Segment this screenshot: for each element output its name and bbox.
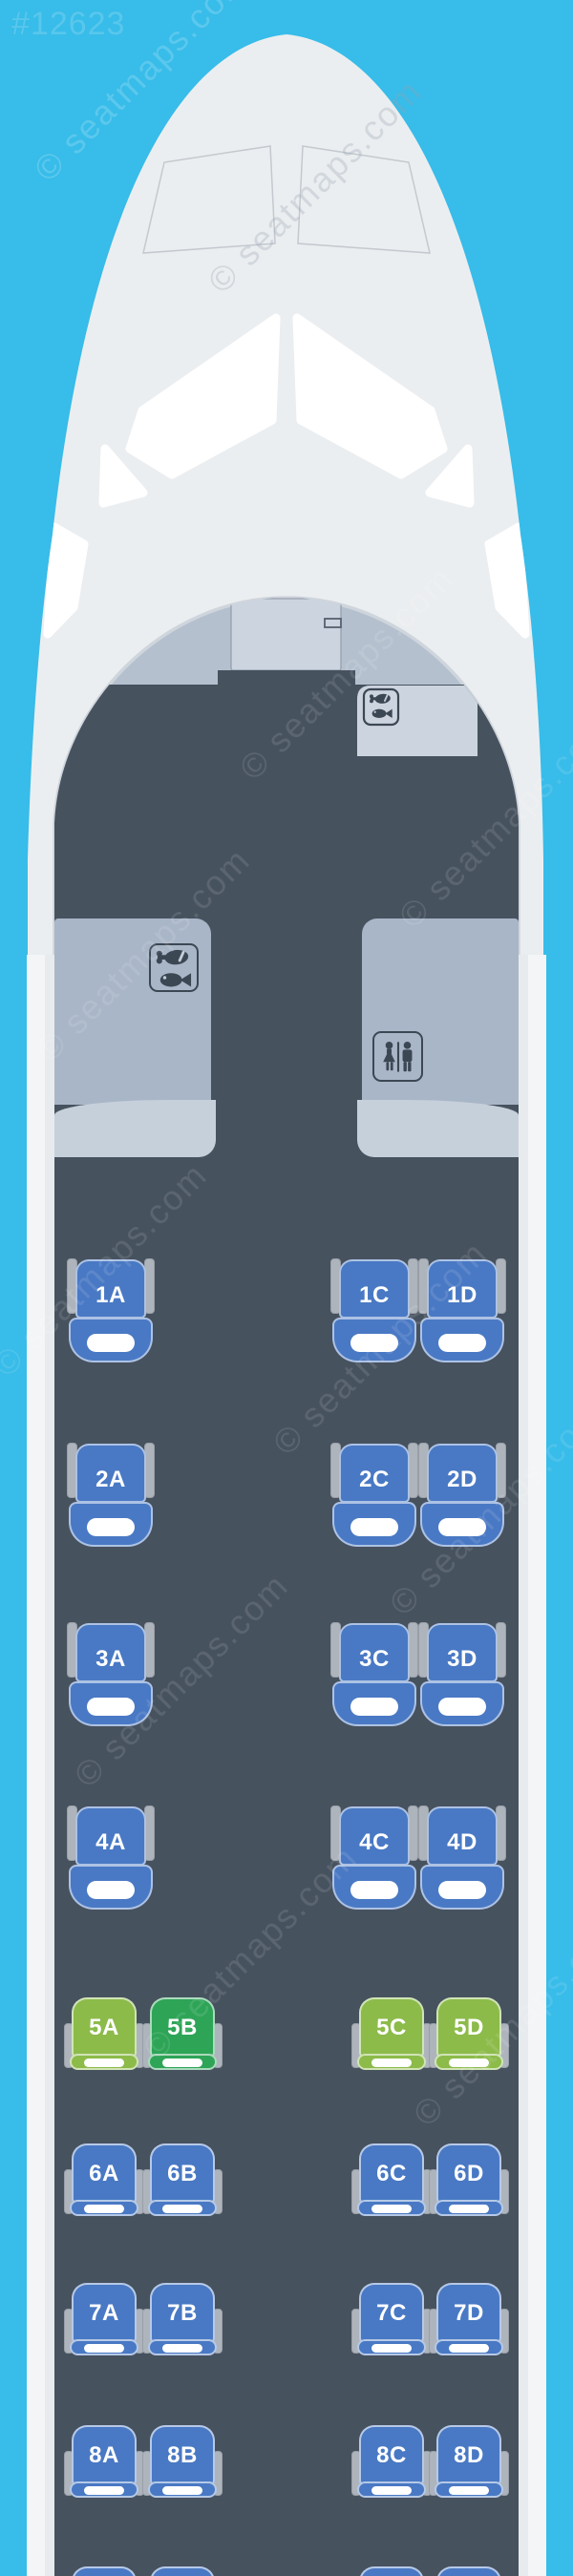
seat-cushion bbox=[435, 2054, 503, 2070]
seat-cushion bbox=[357, 2481, 426, 2498]
seat-cushion-pad bbox=[162, 2059, 202, 2067]
seat-2A[interactable]: 2A bbox=[67, 1442, 155, 1548]
seat-label: 5B bbox=[167, 2015, 198, 2041]
seat-6A[interactable]: 6A bbox=[64, 2143, 144, 2216]
seat-cushion bbox=[332, 1865, 416, 1910]
aircraft-nose-graphic bbox=[0, 0, 573, 964]
seat-3C[interactable]: 3C bbox=[330, 1621, 418, 1727]
seat-5C[interactable]: 5C bbox=[351, 1997, 432, 2070]
fuselage-wall-left bbox=[27, 955, 54, 2576]
seat-cushion bbox=[69, 1318, 153, 1362]
seat-4A[interactable]: 4A bbox=[67, 1805, 155, 1911]
seat-cushion-pad bbox=[84, 2344, 124, 2353]
seat-back: 7A bbox=[72, 2283, 137, 2343]
seat-label: 4A bbox=[95, 1829, 126, 1856]
seat-cushion bbox=[69, 1865, 153, 1910]
seat-label: 7D bbox=[454, 2300, 484, 2327]
seat-label: 8B bbox=[167, 2442, 198, 2469]
seat-back: 3A bbox=[75, 1623, 146, 1682]
seat-cushion-pad bbox=[84, 2486, 124, 2495]
seat-cushion-pad bbox=[350, 1334, 398, 1352]
seat-1C[interactable]: 1C bbox=[330, 1257, 418, 1363]
seat-back: 8D bbox=[436, 2425, 501, 2485]
seat-cushion bbox=[148, 2054, 217, 2070]
seat-cushion-pad bbox=[438, 1518, 486, 1536]
seat-cushion bbox=[148, 2481, 217, 2498]
seat-cushion bbox=[420, 1681, 504, 1726]
seat-label: 8A bbox=[89, 2442, 119, 2469]
fuselage-wall-right bbox=[519, 955, 546, 2576]
seat-label: 2D bbox=[447, 1467, 477, 1493]
seat-back bbox=[436, 2566, 501, 2576]
map-id-label: #12623 bbox=[11, 6, 125, 43]
seat-label: 2C bbox=[359, 1467, 390, 1493]
galley-counter-right bbox=[357, 686, 477, 756]
seat-cushion bbox=[70, 2200, 138, 2216]
seat-row9-d-partial[interactable] bbox=[429, 2566, 509, 2576]
seat-3A[interactable]: 3A bbox=[67, 1621, 155, 1727]
seat-cushion bbox=[332, 1681, 416, 1726]
seat-cushion-pad bbox=[371, 2205, 412, 2213]
seat-8D[interactable]: 8D bbox=[429, 2425, 509, 2498]
seat-back bbox=[72, 2566, 137, 2576]
seat-cushion bbox=[69, 1681, 153, 1726]
seat-cushion-pad bbox=[449, 2059, 489, 2067]
seat-1D[interactable]: 1D bbox=[418, 1257, 506, 1363]
cockpit-door bbox=[231, 599, 341, 670]
seat-back: 2C bbox=[339, 1444, 410, 1503]
seat-cushion-pad bbox=[162, 2486, 202, 2495]
seat-map-page: 1A 1C 1D 2A 2C 2D 3A 3C 3D 4A 4C 4D 5A 5… bbox=[0, 0, 573, 2576]
seat-cushion-pad bbox=[350, 1881, 398, 1899]
lavatory-monument-counter bbox=[357, 1100, 519, 1157]
seat-back: 4D bbox=[427, 1806, 498, 1866]
seat-cushion bbox=[420, 1865, 504, 1910]
seat-label: 7C bbox=[376, 2300, 407, 2327]
seat-cushion bbox=[435, 2481, 503, 2498]
seat-cushion-pad bbox=[162, 2344, 202, 2353]
seat-label: 3A bbox=[95, 1646, 126, 1673]
seat-cushion bbox=[420, 1318, 504, 1362]
seat-7B[interactable]: 7B bbox=[142, 2283, 223, 2355]
seat-label: 6A bbox=[89, 2161, 119, 2187]
seat-cushion bbox=[148, 2339, 217, 2355]
lavatory-icon bbox=[372, 1031, 423, 1082]
seat-cushion-pad bbox=[350, 1518, 398, 1536]
seat-back: 2A bbox=[75, 1444, 146, 1503]
seat-cushion bbox=[435, 2200, 503, 2216]
seat-back: 7C bbox=[359, 2283, 424, 2343]
seat-8B[interactable]: 8B bbox=[142, 2425, 223, 2498]
seat-cushion bbox=[69, 1502, 153, 1547]
seat-back: 8B bbox=[150, 2425, 215, 2485]
seat-4C[interactable]: 4C bbox=[330, 1805, 418, 1911]
seat-5B[interactable]: 5B bbox=[142, 1997, 223, 2070]
seat-label: 3C bbox=[359, 1646, 390, 1673]
seat-label: 7A bbox=[89, 2300, 119, 2327]
seat-cushion bbox=[70, 2481, 138, 2498]
seat-back: 3C bbox=[339, 1623, 410, 1682]
seat-label: 5D bbox=[454, 2015, 484, 2041]
seat-back: 8C bbox=[359, 2425, 424, 2485]
seat-6B[interactable]: 6B bbox=[142, 2143, 223, 2216]
seat-label: 8D bbox=[454, 2442, 484, 2469]
seat-cushion-pad bbox=[350, 1698, 398, 1716]
seat-back: 7D bbox=[436, 2283, 501, 2343]
seat-8A[interactable]: 8A bbox=[64, 2425, 144, 2498]
seat-back: 6D bbox=[436, 2143, 501, 2204]
seat-cushion bbox=[357, 2200, 426, 2216]
seat-cushion-pad bbox=[87, 1698, 135, 1716]
seat-back: 1D bbox=[427, 1259, 498, 1319]
seat-cushion bbox=[357, 2054, 426, 2070]
seat-5A[interactable]: 5A bbox=[64, 1997, 144, 2070]
seat-cushion bbox=[332, 1318, 416, 1362]
seat-label: 1D bbox=[447, 1282, 477, 1309]
seat-3D[interactable]: 3D bbox=[418, 1621, 506, 1727]
seat-back: 1A bbox=[75, 1259, 146, 1319]
seat-cushion bbox=[357, 2339, 426, 2355]
seat-7A[interactable]: 7A bbox=[64, 2283, 144, 2355]
seat-cushion bbox=[70, 2054, 138, 2070]
seat-cushion-pad bbox=[438, 1881, 486, 1899]
seat-label: 6D bbox=[454, 2161, 484, 2187]
seat-cushion-pad bbox=[449, 2205, 489, 2213]
seat-4D[interactable]: 4D bbox=[418, 1805, 506, 1911]
seat-row9-c-partial[interactable] bbox=[351, 2566, 432, 2576]
seat-label: 4C bbox=[359, 1829, 390, 1856]
seat-label: 1A bbox=[95, 1282, 126, 1309]
seat-2D[interactable]: 2D bbox=[418, 1442, 506, 1548]
seat-6D[interactable]: 6D bbox=[429, 2143, 509, 2216]
seat-back: 4C bbox=[339, 1806, 410, 1866]
seat-back: 6B bbox=[150, 2143, 215, 2204]
seat-label: 3D bbox=[447, 1646, 477, 1673]
seat-cushion-pad bbox=[371, 2059, 412, 2067]
seat-label: 6C bbox=[376, 2161, 407, 2187]
seat-back: 5C bbox=[359, 1997, 424, 2058]
seat-back: 7B bbox=[150, 2283, 215, 2343]
seat-label: 1C bbox=[359, 1282, 390, 1309]
seat-back: 6C bbox=[359, 2143, 424, 2204]
seat-cushion-pad bbox=[84, 2205, 124, 2213]
seat-back: 1C bbox=[339, 1259, 410, 1319]
seat-row9-b-partial[interactable] bbox=[142, 2566, 223, 2576]
seat-back: 6A bbox=[72, 2143, 137, 2204]
seat-cushion-pad bbox=[449, 2344, 489, 2353]
seat-row9-a-partial[interactable] bbox=[64, 2566, 144, 2576]
seat-label: 6B bbox=[167, 2161, 198, 2187]
seat-7D[interactable]: 7D bbox=[429, 2283, 509, 2355]
seat-cushion bbox=[148, 2200, 217, 2216]
seat-label: 5A bbox=[89, 2015, 119, 2041]
seat-cushion-pad bbox=[87, 1518, 135, 1536]
seat-back bbox=[359, 2566, 424, 2576]
seat-cushion-pad bbox=[371, 2486, 412, 2495]
seat-back: 3D bbox=[427, 1623, 498, 1682]
seat-8C[interactable]: 8C bbox=[351, 2425, 432, 2498]
seat-back: 8A bbox=[72, 2425, 137, 2485]
seat-cushion bbox=[70, 2339, 138, 2355]
seat-back: 5B bbox=[150, 1997, 215, 2058]
seat-cushion-pad bbox=[87, 1881, 135, 1899]
seat-cushion bbox=[420, 1502, 504, 1547]
seat-2C[interactable]: 2C bbox=[330, 1442, 418, 1548]
seat-7C[interactable]: 7C bbox=[351, 2283, 432, 2355]
seat-1A[interactable]: 1A bbox=[67, 1257, 155, 1363]
seat-cushion-pad bbox=[162, 2205, 202, 2213]
seat-6C[interactable]: 6C bbox=[351, 2143, 432, 2216]
seat-label: 2A bbox=[95, 1467, 126, 1493]
seat-cushion-pad bbox=[438, 1698, 486, 1716]
seat-label: 4D bbox=[447, 1829, 477, 1856]
galley-icon bbox=[149, 943, 199, 992]
seat-back: 4A bbox=[75, 1806, 146, 1866]
seat-5D[interactable]: 5D bbox=[429, 1997, 509, 2070]
seat-cushion-pad bbox=[87, 1334, 135, 1352]
seat-cushion-pad bbox=[449, 2486, 489, 2495]
seat-cushion-pad bbox=[371, 2344, 412, 2353]
seat-label: 8C bbox=[376, 2442, 407, 2469]
galley-monument-counter bbox=[54, 1100, 216, 1157]
seat-back bbox=[150, 2566, 215, 2576]
seat-back: 5D bbox=[436, 1997, 501, 2058]
seat-label: 7B bbox=[167, 2300, 198, 2327]
seat-cushion-pad bbox=[84, 2059, 124, 2067]
seat-back: 2D bbox=[427, 1444, 498, 1503]
seat-cushion bbox=[435, 2339, 503, 2355]
seat-back: 5A bbox=[72, 1997, 137, 2058]
seat-cushion-pad bbox=[438, 1334, 486, 1352]
seat-label: 5C bbox=[376, 2015, 407, 2041]
seat-cushion bbox=[332, 1502, 416, 1547]
